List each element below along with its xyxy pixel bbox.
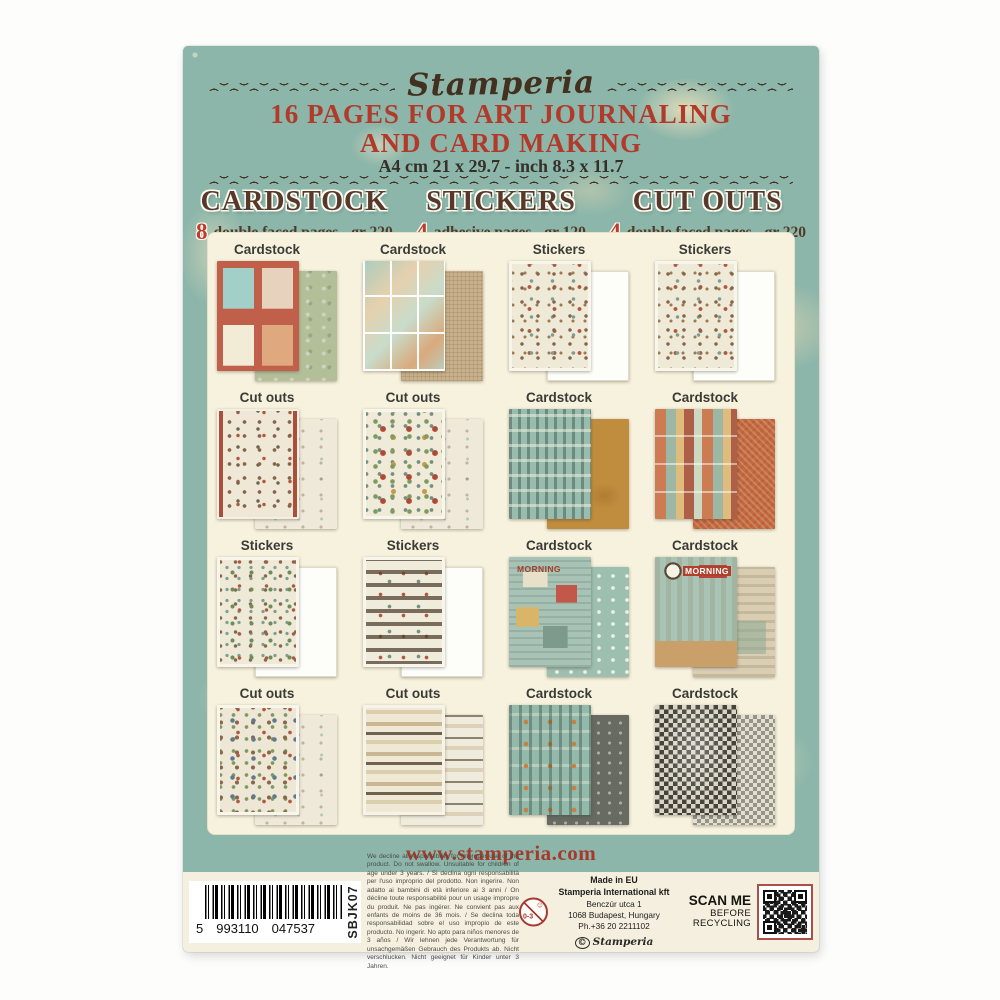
- thumbnail: [209, 705, 355, 829]
- grid-cell-stickers-1: Stickers: [501, 239, 647, 387]
- spec-name: CARDSTOCK: [191, 186, 398, 218]
- thumbnail: [355, 557, 501, 681]
- thumbnail-grid: Cardstock Cardstock Stickers: [207, 232, 795, 831]
- cell-label: Cut outs: [215, 390, 319, 405]
- sheet-front: [217, 409, 299, 519]
- wavy-line-left: [209, 83, 395, 91]
- qr-finder-icon: [763, 921, 776, 934]
- grid-cell-cardstock-2: Cardstock: [355, 239, 501, 387]
- cell-label: Cardstock: [361, 242, 465, 257]
- made-in-line: Made in EU: [555, 875, 673, 887]
- wavy-divider: [209, 176, 793, 184]
- wavy-line-right: [607, 83, 793, 91]
- size-spec: A4 cm 21 x 29.7 - inch 8.3 x 11.7: [183, 156, 819, 177]
- thumbnail: [501, 261, 647, 385]
- grid-cell-cardstock-3: Cardstock: [501, 387, 647, 535]
- copyright-signature: ©Stamperia: [555, 935, 673, 949]
- phone-line: Ph.+36 20 2211102: [555, 921, 673, 932]
- thumbnail: MORNING: [501, 557, 647, 681]
- thumbnail: [355, 705, 501, 829]
- spec-count: 8: [196, 219, 208, 244]
- thumbnail: [355, 261, 501, 385]
- address-line: 1068 Budapest, Hungary: [555, 910, 673, 921]
- qr-code: [757, 884, 813, 940]
- thumbnail-overlay-text: MORNING: [517, 564, 561, 574]
- cell-label: Cardstock: [215, 242, 319, 257]
- grid-cell-cardstock-5: Cardstock MORNING: [501, 535, 647, 683]
- thumbnail: [647, 409, 793, 533]
- cell-label: Stickers: [215, 538, 319, 553]
- thumbnail: [209, 261, 355, 385]
- address-line: Benczúr utca 1: [555, 899, 673, 910]
- cell-label: Cardstock: [507, 538, 611, 553]
- age-warning-label: 0-3: [523, 912, 533, 921]
- safety-disclaimer: We decline all responsibility for improp…: [367, 853, 549, 971]
- grid-cell-cutouts-2: Cut outs: [355, 387, 501, 535]
- barcode-digits: 5 993110 047537: [195, 921, 343, 936]
- thumbnail: [501, 409, 647, 533]
- cell-label: Cardstock: [507, 686, 611, 701]
- company-name: Stamperia International kft: [555, 887, 673, 899]
- grid-cell-cutouts-1: Cut outs: [209, 387, 355, 535]
- sheet-front: [217, 705, 299, 815]
- grid-cell-cardstock-1: Cardstock: [209, 239, 355, 387]
- thumbnail: MORNING: [647, 557, 793, 681]
- sheet-front: [217, 557, 299, 667]
- thumbnail-overlay-text: MORNING: [683, 566, 731, 576]
- sheet-front: [217, 261, 299, 371]
- manufacturer-info: Made in EU Stamperia International kft B…: [555, 875, 673, 949]
- sheet-front: [655, 409, 737, 519]
- thumbnail: [355, 409, 501, 533]
- barcode-bars: [205, 885, 343, 919]
- cell-label: Cardstock: [653, 686, 757, 701]
- grid-cell-cutouts-4: Cut outs: [355, 683, 501, 831]
- sku-code: SBJK07: [346, 885, 360, 938]
- cell-label: Stickers: [507, 242, 611, 257]
- grid-cell-cardstock-8: Cardstock: [647, 683, 793, 831]
- headline-line2: AND CARD MAKING: [183, 130, 819, 157]
- grid-cell-cardstock-4: Cardstock: [647, 387, 793, 535]
- grid-cell-cardstock-7: Cardstock: [501, 683, 647, 831]
- qr-finder-icon: [794, 890, 807, 903]
- spec-name: STICKERS: [398, 186, 605, 218]
- grid-cell-cardstock-6: Cardstock MORNING: [647, 535, 793, 683]
- grid-cell-cutouts-3: Cut outs: [209, 683, 355, 831]
- product-card: Stamperia 16 PAGES FOR ART JOURNALING AN…: [183, 46, 819, 952]
- scan-me-text: SCAN ME BEFORE RECYCLING: [679, 894, 751, 930]
- sheet-front: [509, 261, 591, 371]
- grid-cell-stickers-3: Stickers: [209, 535, 355, 683]
- thumbnail: [647, 261, 793, 385]
- cell-label: Stickers: [361, 538, 465, 553]
- copyright-icon: ©: [575, 937, 590, 949]
- sheet-front: [655, 261, 737, 371]
- sheet-front: [363, 705, 445, 815]
- age-warning-icon: 0-3: [519, 898, 548, 927]
- sheet-front: [509, 705, 591, 815]
- sheet-front: [655, 705, 737, 815]
- thumbnail-panel: Cardstock Cardstock Stickers: [207, 232, 795, 835]
- packaging-back-photo: Stamperia 16 PAGES FOR ART JOURNALING AN…: [0, 0, 1000, 1000]
- cell-label: Cardstock: [653, 538, 757, 553]
- qr-finder-icon: [763, 890, 776, 903]
- sheet-front: [363, 261, 445, 371]
- cell-label: Cut outs: [361, 390, 465, 405]
- thumbnail: [501, 705, 647, 829]
- spec-name: CUT OUTS: [604, 186, 811, 218]
- cell-label: Cardstock: [653, 390, 757, 405]
- thumbnail: [209, 557, 355, 681]
- brand-header: Stamperia: [209, 64, 793, 104]
- thumbnail: [209, 409, 355, 533]
- headline-line1: 16 PAGES FOR ART JOURNALING: [183, 101, 819, 128]
- cell-label: Cardstock: [507, 390, 611, 405]
- sheet-front: [509, 409, 591, 519]
- sheet-front: [363, 409, 445, 519]
- sheet-front: [363, 557, 445, 667]
- grid-cell-stickers-4: Stickers: [355, 535, 501, 683]
- cell-label: Cut outs: [361, 686, 465, 701]
- footer-strip: 5 993110 047537 SBJK07 We decline all re…: [183, 872, 819, 952]
- barcode: 5 993110 047537 SBJK07: [189, 881, 361, 943]
- cell-label: Cut outs: [215, 686, 319, 701]
- brand-logo: Stamperia: [407, 64, 596, 103]
- grid-cell-stickers-2: Stickers: [647, 239, 793, 387]
- cell-label: Stickers: [653, 242, 757, 257]
- thumbnail: [647, 705, 793, 829]
